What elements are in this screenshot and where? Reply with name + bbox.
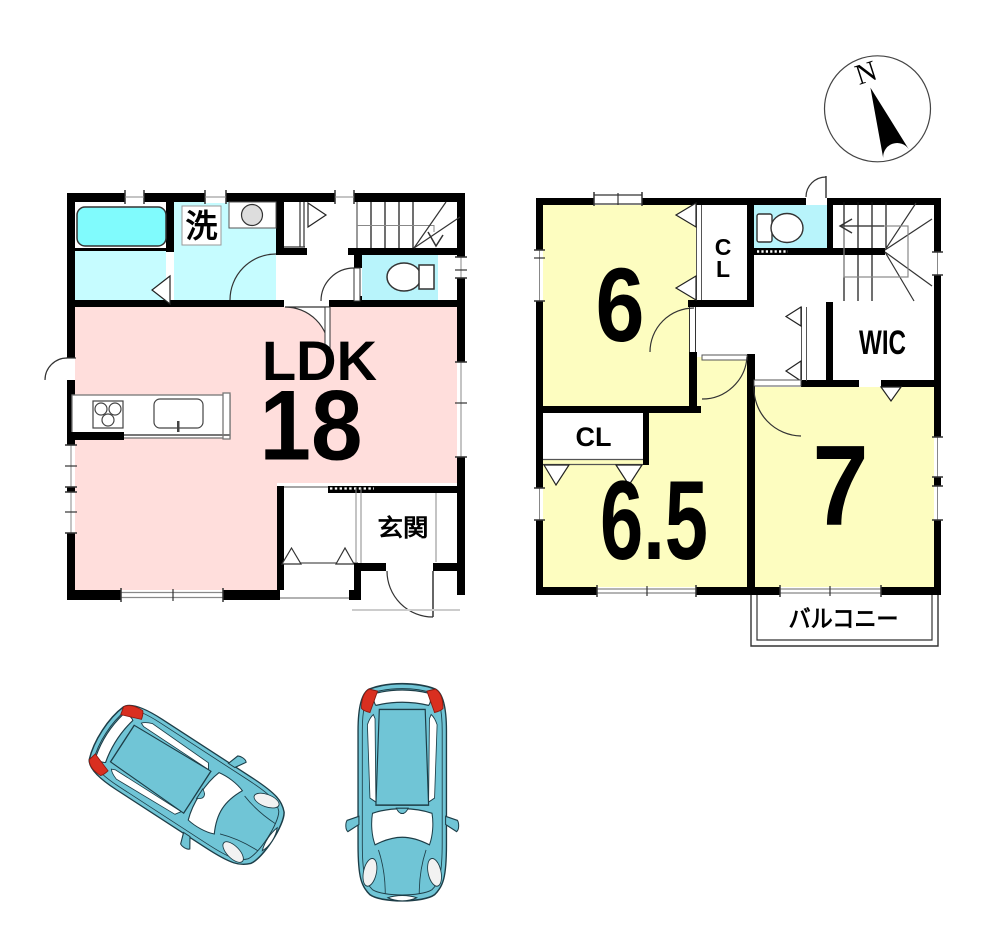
svg-text:7: 7 bbox=[813, 423, 869, 550]
svg-text:バルコニー: バルコニー bbox=[789, 606, 899, 633]
svg-text:CL: CL bbox=[576, 422, 612, 452]
svg-text:18: 18 bbox=[260, 370, 363, 481]
svg-text:WIC: WIC bbox=[859, 324, 906, 362]
svg-text:洗: 洗 bbox=[185, 208, 217, 244]
svg-text:玄関: 玄関 bbox=[378, 514, 429, 542]
svg-text:L: L bbox=[716, 256, 730, 282]
svg-text:6.5: 6.5 bbox=[600, 458, 708, 583]
svg-text:6: 6 bbox=[596, 247, 645, 364]
